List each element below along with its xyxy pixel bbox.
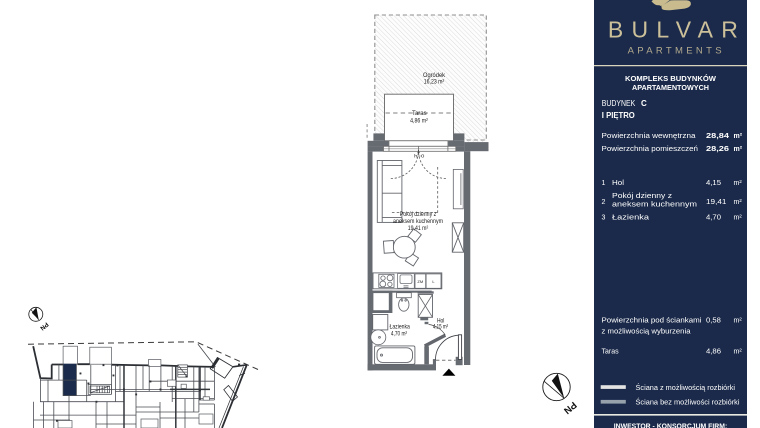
svg-text:Pokój dzienny z: Pokój dzienny z: [400, 212, 437, 218]
svg-text:Ściana z możliwością rozbiórki: Ściana z możliwością rozbiórki: [636, 383, 736, 392]
svg-text:28,84: 28,84: [706, 133, 729, 140]
svg-text:Ogródek: Ogródek: [423, 73, 446, 79]
svg-text:Pokój dzienny z: Pokój dzienny z: [612, 193, 673, 200]
svg-text:APARTAMENTOWYCH: APARTAMENTOWYCH: [632, 83, 709, 92]
svg-text:19,41: 19,41: [706, 199, 727, 206]
svg-text:Łazienka: Łazienka: [390, 324, 411, 330]
svg-text:m²: m²: [734, 199, 743, 206]
svg-text:m²: m²: [734, 348, 743, 355]
svg-text:m²: m²: [734, 133, 743, 140]
svg-text:aneksem kuchennym: aneksem kuchennym: [612, 202, 697, 209]
svg-text:Taras: Taras: [412, 111, 427, 117]
svg-text:C: C: [641, 99, 647, 108]
svg-text:4,86: 4,86: [706, 348, 721, 355]
svg-text:2: 2: [602, 199, 606, 206]
svg-text:Hol: Hol: [612, 180, 624, 187]
svg-text:ZM: ZM: [417, 279, 423, 284]
svg-text:Powierzchnia pomieszczeń: Powierzchnia pomieszczeń: [602, 146, 699, 153]
svg-text:Taras: Taras: [602, 348, 620, 355]
svg-text:h=0: h=0: [414, 154, 425, 159]
svg-text:4,15: 4,15: [706, 180, 721, 187]
svg-text:Hol: Hol: [437, 318, 444, 324]
svg-text:Łazienka: Łazienka: [612, 214, 649, 221]
svg-text:4,86 m²: 4,86 m²: [410, 118, 428, 124]
svg-text:aneksem kuchennym: aneksem kuchennym: [393, 219, 443, 225]
svg-text:INWESTOR - KONSORCJUM FIRM:: INWESTOR - KONSORCJUM FIRM:: [614, 424, 728, 428]
svg-text:m²: m²: [734, 146, 743, 153]
svg-text:Ściana bez możliwości rozbiórk: Ściana bez możliwości rozbiórki: [636, 398, 740, 407]
svg-text:16,23 m²: 16,23 m²: [424, 80, 445, 86]
svg-text:z możliwością wyburzenia: z możliwością wyburzenia: [602, 329, 691, 336]
svg-text:4,70: 4,70: [706, 214, 721, 221]
svg-text:m²: m²: [734, 318, 743, 325]
svg-text:Powierzchnia pod ściankami: Powierzchnia pod ściankami: [602, 318, 702, 325]
svg-text:1: 1: [602, 180, 606, 187]
svg-text:19,41 m²: 19,41 m²: [408, 226, 429, 232]
svg-text:m²: m²: [734, 180, 743, 187]
svg-text:Powierzchnia wewnętrzna: Powierzchnia wewnętrzna: [602, 133, 696, 140]
svg-text:4,70 m²: 4,70 m²: [391, 331, 407, 337]
svg-text:I PIĘTRO: I PIĘTRO: [602, 111, 635, 120]
svg-text:3: 3: [602, 214, 606, 221]
svg-text:KOMPLEKS BUDYNKÓW: KOMPLEKS BUDYNKÓW: [625, 74, 717, 83]
svg-text:BUDYNEK: BUDYNEK: [602, 99, 636, 108]
svg-text:m²: m²: [734, 214, 743, 221]
svg-text:0,58: 0,58: [706, 318, 721, 325]
svg-text:28,26: 28,26: [706, 146, 729, 153]
svg-text:APARTMENTS: APARTMENTS: [628, 46, 722, 57]
